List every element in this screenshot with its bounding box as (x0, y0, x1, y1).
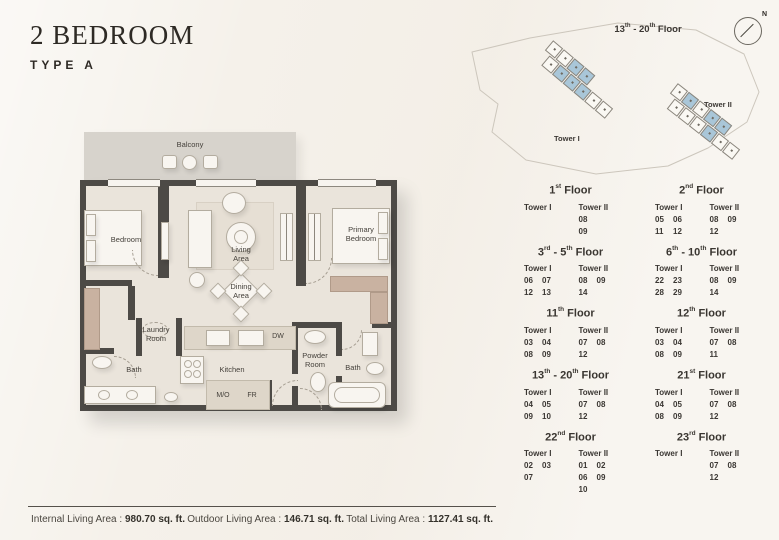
unit-number: 14 (710, 288, 721, 297)
tower-header: Tower II (579, 203, 626, 212)
tower-column: Tower I22232829 (647, 264, 702, 297)
unit-number-row: 0304 (524, 338, 571, 347)
unit-number: 09 (673, 412, 684, 421)
total-area-stat: Total Living Area : 1127.41 sq. ft. (346, 514, 493, 525)
unit-number-row: 12 (579, 350, 626, 359)
burner (193, 360, 201, 368)
tower-header: Tower II (579, 264, 626, 273)
unit-number-row: 2829 (655, 288, 702, 297)
balcony-table (182, 155, 197, 170)
unit-number: 11 (710, 350, 721, 359)
unit-number-row: 14 (710, 288, 757, 297)
unit-number: 01 (579, 461, 590, 470)
ordinal-suffix: th (625, 23, 631, 29)
unit-number: 12 (673, 227, 684, 236)
wardrobe-rail (308, 213, 321, 261)
north-label: N (762, 11, 767, 18)
bath-label: Bath (116, 366, 152, 375)
tower-column: Tower II070812 (702, 388, 757, 421)
tower-column: Tower II080914 (571, 264, 626, 297)
tower-header: Tower II (710, 203, 757, 212)
floor-title: 13th - 20th Floor (512, 369, 629, 382)
vanity (84, 386, 156, 404)
floor-table: 13th - 20th Floor Tower I04050910Tower I… (512, 369, 629, 421)
unit-number: 12 (710, 412, 721, 421)
unit-number: 09 (542, 350, 553, 359)
unit-number-row: 0708 (710, 400, 757, 409)
floor-table: 2nd Floor Tower I05061112Tower II080912 (643, 184, 760, 236)
tower-column: Tower II070812 (571, 388, 626, 421)
unit-number-row: 12 (710, 412, 757, 421)
unit-number: 12 (710, 227, 721, 236)
unit-number-row: 08 (579, 215, 626, 224)
wardrobe (370, 292, 388, 324)
floor-towers: Tower I06071213Tower II080914 (512, 264, 629, 297)
ordinal-suffix: nd (685, 183, 693, 190)
unit-number: 09 (597, 276, 608, 285)
unit-number-row: 0910 (524, 412, 571, 421)
floor-title: 12th Floor (643, 307, 760, 320)
area-stats: Internal Living Area : 980.70 sq. ft. Ou… (31, 514, 493, 525)
wall-segment (84, 280, 132, 286)
window (318, 179, 376, 187)
tower-header: Tower I (655, 449, 702, 458)
tower-header: Tower I (524, 264, 571, 273)
availability-tables: 1st Floor Tower ITower II0809 2nd Floor … (512, 184, 760, 494)
cooktop (180, 356, 204, 384)
unit-number: 07 (579, 338, 590, 347)
bath-label: Bath (336, 364, 370, 373)
unit-number: 04 (542, 338, 553, 347)
tower-header: Tower II (710, 326, 757, 335)
outdoor-area-stat: Outdoor Living Area : 146.71 sq. ft. (187, 514, 344, 525)
unit-number-row: 11 (710, 350, 757, 359)
page-subtitle: TYPE A (30, 58, 194, 72)
tower-header: Tower I (655, 264, 702, 273)
balcony-chair (162, 155, 177, 169)
wardrobe-rail (280, 213, 293, 261)
unit-number-row: 0506 (655, 215, 702, 224)
unit-number: 09 (728, 276, 739, 285)
kitchen-label: Kitchen (212, 366, 252, 375)
ordinal-suffix: th (572, 368, 578, 375)
tower-column: Tower I (516, 203, 571, 236)
powder-toilet (310, 372, 326, 392)
unit-number-row: 0607 (524, 276, 571, 285)
floor-towers: Tower ITower II0809 (512, 203, 629, 236)
tower-column: Tower II070812 (571, 326, 626, 359)
unit-number-row: 09 (579, 227, 626, 236)
tower-header: Tower II (579, 449, 626, 458)
tower-header: Tower II (710, 388, 757, 397)
unit-number-row: 0809 (579, 276, 626, 285)
bath-sink-cabinet (362, 332, 378, 356)
unit-number: 08 (524, 350, 535, 359)
tower-header: Tower II (710, 449, 757, 458)
window (196, 179, 256, 187)
floor-table: 23rd Floor Tower ITower II070812 (643, 431, 760, 495)
laundry-room-label: Laundry Room (134, 326, 178, 343)
total-area-label: Total Living Area : (346, 514, 425, 525)
floor-table: 12th Floor Tower I03040809Tower II070811 (643, 307, 760, 359)
tower-column: Tower I03040809 (647, 326, 702, 359)
unit-number: 06 (524, 276, 535, 285)
ordinal-suffix: th (544, 368, 550, 375)
floor-towers: Tower I03040809Tower II070812 (512, 326, 629, 359)
floor-table: 3rd - 5th Floor Tower I06071213Tower II0… (512, 246, 629, 298)
unit-number-row: 14 (579, 288, 626, 297)
unit-number: 12 (579, 350, 590, 359)
unit-number: 28 (655, 288, 666, 297)
unit-number: 12 (710, 473, 721, 482)
powder-sink (304, 330, 326, 344)
floor-title: 21st Floor (643, 369, 760, 382)
unit-number: 08 (597, 400, 608, 409)
unit-number: 08 (597, 338, 608, 347)
siteplan-floor-label: 13th - 20th Floor (588, 24, 708, 35)
pillow (86, 240, 96, 262)
unit-number-row: 0809 (655, 412, 702, 421)
floor-title: 1st Floor (512, 184, 629, 197)
floor-plan: Balcony Bedroom (78, 130, 400, 422)
unit-number: 08 (728, 338, 739, 347)
ordinal-suffix: rd (689, 430, 696, 437)
tower-header: Tower I (655, 326, 702, 335)
compass-needle (740, 24, 753, 37)
bedroom-label: Bedroom (98, 236, 154, 245)
unit-number: 12 (524, 288, 535, 297)
unit-number: 06 (579, 473, 590, 482)
unit-number: 07 (710, 461, 721, 470)
burner (193, 370, 201, 378)
floor-table: 21st Floor Tower I04050809Tower II070812 (643, 369, 760, 421)
floor-table: 6th - 10th Floor Tower I22232829Tower II… (643, 246, 760, 298)
balcony-chair (203, 155, 218, 169)
unit-number: 08 (655, 350, 666, 359)
wall-segment (128, 286, 135, 320)
unit-number: 29 (673, 288, 684, 297)
ordinal-suffix: th (650, 23, 656, 29)
fridge-label: FR (240, 392, 264, 400)
floor-towers: Tower I04050910Tower II070812 (512, 388, 629, 421)
unit-number-row: 12 (710, 473, 757, 482)
unit-number: 04 (524, 400, 535, 409)
floor-table: 11th Floor Tower I03040809Tower II070812 (512, 307, 629, 359)
floor-table: 22nd Floor Tower I020307Tower II01020609… (512, 431, 629, 495)
internal-area-stat: Internal Living Area : 980.70 sq. ft. (31, 514, 185, 525)
unit-number-row: 0809 (710, 215, 757, 224)
tower-header: Tower I (524, 326, 571, 335)
unit-number: 09 (673, 350, 684, 359)
compass-icon (734, 17, 762, 45)
unit-number: 08 (655, 412, 666, 421)
unit-number-row: 12 (579, 412, 626, 421)
tower-header: Tower II (579, 388, 626, 397)
sink (126, 390, 138, 400)
unit-number: 11 (655, 227, 666, 236)
burner (184, 370, 192, 378)
tower-column: Tower I04050809 (647, 388, 702, 421)
floor-title: 3rd - 5th Floor (512, 246, 629, 259)
unit-number-row: 0809 (710, 276, 757, 285)
wall-segment (298, 322, 338, 328)
tower-column: Tower I06071213 (516, 264, 571, 297)
toilet (92, 356, 112, 369)
unit-number-row: 0809 (524, 350, 571, 359)
unit-number: 02 (597, 461, 608, 470)
ordinal-suffix: rd (544, 245, 551, 252)
side-table (189, 272, 205, 288)
unit-number: 23 (673, 276, 684, 285)
unit-number: 04 (655, 400, 666, 409)
unit-number: 07 (710, 400, 721, 409)
unit-number-row: 12 (710, 227, 757, 236)
unit-number-row: 07 (524, 473, 571, 482)
unit-number: 07 (710, 338, 721, 347)
unit-number: 03 (655, 338, 666, 347)
floor-title: 2nd Floor (643, 184, 760, 197)
tower-column: Tower II0809 (571, 203, 626, 236)
microwave-oven-label: M/O (210, 392, 236, 400)
primary-bedroom-label: Primary Bedroom (334, 226, 388, 243)
wardrobe (330, 276, 388, 292)
ordinal-suffix: th (558, 306, 564, 313)
unit-number: 04 (673, 338, 684, 347)
unit-number: 10 (542, 412, 553, 421)
tower-column: Tower II080914 (702, 264, 757, 297)
tower-column: Tower I05061112 (647, 203, 702, 236)
unit-number: 08 (710, 215, 721, 224)
unit-number-row: 0304 (655, 338, 702, 347)
unit-number: 03 (542, 461, 553, 470)
ordinal-suffix: st (689, 368, 695, 375)
tower-column: Tower II0102060910 (571, 449, 626, 494)
wall-segment (296, 186, 306, 286)
tower-header: Tower I (655, 388, 702, 397)
bathtub-inner (334, 387, 380, 403)
burner (184, 360, 192, 368)
floor-title: 11th Floor (512, 307, 629, 320)
tower-column: Tower II070812 (702, 449, 757, 482)
tower-header: Tower I (524, 388, 571, 397)
outdoor-area-value: 146.71 sq. ft. (284, 514, 344, 525)
unit-number-row: 0102 (579, 461, 626, 470)
unit-number: 02 (524, 461, 535, 470)
ordinal-suffix: nd (557, 430, 565, 437)
total-area-value: 1127.41 sq. ft. (428, 514, 493, 525)
unit-number: 22 (655, 276, 666, 285)
floor-table: 1st Floor Tower ITower II0809 (512, 184, 629, 236)
powder-room-label: Powder Room (292, 352, 338, 369)
unit-number: 06 (673, 215, 684, 224)
tower-column: Tower I04050910 (516, 388, 571, 421)
unit-number: 12 (579, 412, 590, 421)
dishwasher-label: DW (266, 333, 290, 341)
unit-number-row: 10 (579, 485, 626, 494)
unit-number: 08 (728, 461, 739, 470)
unit-number: 14 (579, 288, 590, 297)
unit-number-row: 0405 (524, 400, 571, 409)
ordinal-suffix: th (700, 245, 706, 252)
unit-number: 10 (579, 485, 590, 494)
floor-title: 22nd Floor (512, 431, 629, 444)
floor-towers: Tower I04050809Tower II070812 (643, 388, 760, 421)
unit-number: 07 (542, 276, 553, 285)
floor-towers: Tower I03040809Tower II070811 (643, 326, 760, 359)
floor-towers: Tower I05061112Tower II080912 (643, 203, 760, 236)
unit-number-row: 1213 (524, 288, 571, 297)
tower-header: Tower I (655, 203, 702, 212)
unit-number: 08 (579, 215, 590, 224)
unit-number-row: 0708 (579, 400, 626, 409)
unit-number-row: 2223 (655, 276, 702, 285)
kitchen-sink (206, 330, 230, 346)
pillow (86, 214, 96, 236)
sofa (188, 210, 212, 268)
unit-number: 05 (542, 400, 553, 409)
unit-number: 08 (728, 400, 739, 409)
unit-number: 08 (579, 276, 590, 285)
tower-column: Tower I03040809 (516, 326, 571, 359)
brochure-page: 2 BEDROOM TYPE A Balcony Bedroom (0, 0, 779, 540)
tower-header: Tower II (579, 326, 626, 335)
living-area-label: Living Area (226, 246, 256, 263)
unit-number: 08 (710, 276, 721, 285)
unit-number: 13 (542, 288, 553, 297)
ordinal-suffix: th (566, 245, 572, 252)
tower-column: Tower I020307 (516, 449, 571, 494)
internal-area-value: 980.70 sq. ft. (125, 514, 185, 525)
coffee-table-inner (234, 230, 248, 244)
sink (98, 390, 110, 400)
site-plan: 13th - 20th Floor N Tower I Tower II (468, 8, 779, 184)
unit-number: 07 (579, 400, 590, 409)
dishwasher (238, 330, 264, 346)
unit-number: 09 (597, 473, 608, 482)
balcony-label: Balcony (154, 141, 226, 150)
tower-header: Tower I (524, 203, 571, 212)
tower-column: Tower II070811 (702, 326, 757, 359)
armchair (222, 192, 246, 214)
unit-number-row: 1112 (655, 227, 702, 236)
toilet (164, 392, 178, 402)
unit-number: 09 (579, 227, 590, 236)
unit-number-row: 0405 (655, 400, 702, 409)
footer-divider (28, 506, 496, 507)
unit-number-row: 0708 (710, 461, 757, 470)
floor-title: 23rd Floor (643, 431, 760, 444)
unit-number-row: 0203 (524, 461, 571, 470)
floor-towers: Tower ITower II070812 (643, 449, 760, 482)
unit-number: 09 (728, 215, 739, 224)
tv-console (161, 222, 169, 260)
unit-number: 09 (524, 412, 535, 421)
page-title: 2 BEDROOM (30, 20, 194, 51)
internal-area-label: Internal Living Area : (31, 514, 122, 525)
tower-column: Tower I (647, 449, 702, 482)
unit-number-row: 0809 (655, 350, 702, 359)
ordinal-suffix: th (672, 245, 678, 252)
floor-title: 6th - 10th Floor (643, 246, 760, 259)
ordinal-suffix: th (689, 306, 695, 313)
floor-towers: Tower I22232829Tower II080914 (643, 264, 760, 297)
tower-1-label: Tower I (554, 134, 580, 143)
tower-header: Tower I (524, 449, 571, 458)
unit-number-row: 0708 (710, 338, 757, 347)
unit-number-row: 0609 (579, 473, 626, 482)
tower-2-label: Tower II (704, 100, 732, 109)
tower-column: Tower II080912 (702, 203, 757, 236)
ordinal-suffix: st (555, 183, 561, 190)
tower-header: Tower II (710, 264, 757, 273)
unit-number: 03 (524, 338, 535, 347)
window (108, 179, 160, 187)
header: 2 BEDROOM TYPE A (30, 20, 194, 72)
unit-number: 05 (673, 400, 684, 409)
outdoor-area-label: Outdoor Living Area : (187, 514, 281, 525)
unit-number: 05 (655, 215, 666, 224)
unit-number: 07 (524, 473, 535, 482)
dining-area-label: Dining Area (222, 283, 260, 300)
unit-number-row: 0708 (579, 338, 626, 347)
hall-wardrobe (84, 288, 100, 350)
floor-towers: Tower I020307Tower II0102060910 (512, 449, 629, 494)
